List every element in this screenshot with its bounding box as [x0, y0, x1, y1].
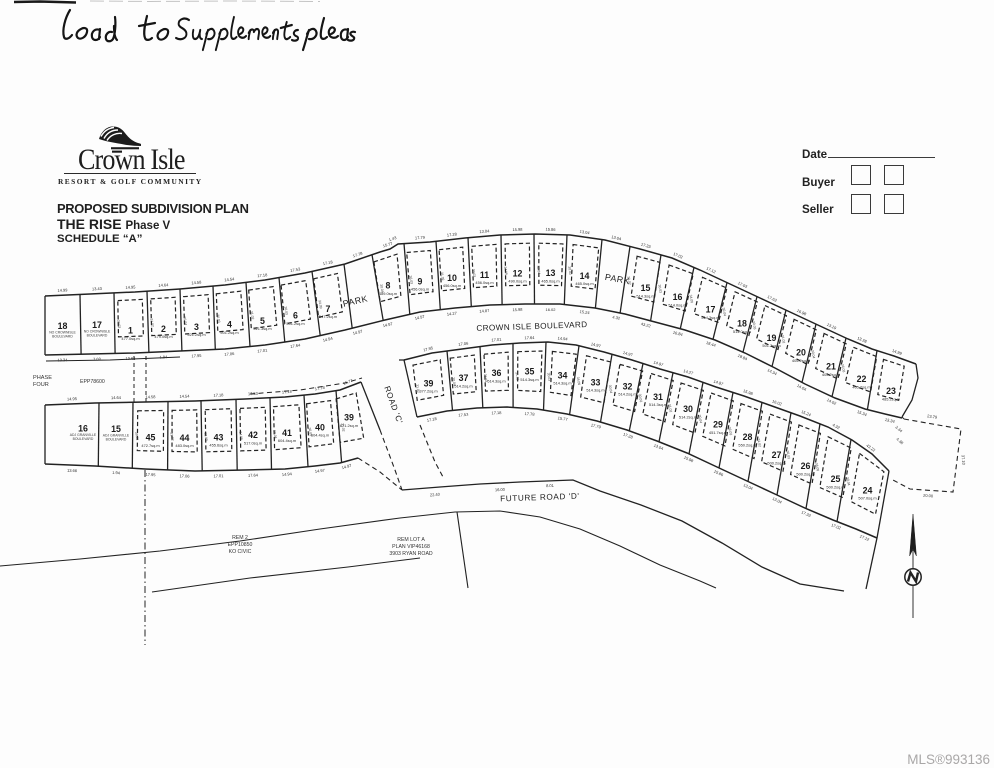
- svg-text:17.64: 17.64: [524, 335, 535, 340]
- svg-text:31.02: 31.02: [340, 423, 345, 432]
- svg-text:465.0sq.m: 465.0sq.m: [575, 281, 593, 286]
- svg-text:31.02: 31.02: [781, 335, 786, 344]
- svg-text:BOULEVARD: BOULEVARD: [106, 437, 127, 441]
- svg-text:16.02: 16.02: [545, 307, 556, 312]
- svg-text:501.2sq.m: 501.2sq.m: [220, 330, 238, 335]
- svg-text:43: 43: [214, 432, 224, 442]
- svg-text:17.18: 17.18: [491, 410, 502, 415]
- svg-text:14.97: 14.97: [414, 314, 426, 321]
- svg-text:30.04: 30.04: [536, 265, 541, 274]
- svg-text:514.3sq.m: 514.3sq.m: [553, 381, 571, 386]
- svg-text:1.94: 1.94: [159, 354, 168, 359]
- svg-text:20.00: 20.00: [923, 493, 934, 499]
- svg-text:30.04: 30.04: [608, 385, 613, 394]
- svg-text:35: 35: [525, 367, 535, 377]
- svg-text:30.04: 30.04: [698, 414, 703, 423]
- svg-text:14.99: 14.99: [891, 348, 903, 356]
- svg-text:17.79: 17.79: [590, 422, 602, 429]
- svg-text:514.3sq.m: 514.3sq.m: [487, 378, 505, 383]
- svg-text:17.18: 17.18: [282, 389, 293, 395]
- svg-text:36.03: 36.03: [134, 432, 139, 441]
- svg-text:23.79: 23.79: [927, 413, 938, 419]
- svg-text:17.64: 17.64: [248, 472, 259, 477]
- svg-text:14.64: 14.64: [158, 282, 169, 288]
- svg-text:514.0sq.m: 514.0sq.m: [733, 329, 751, 334]
- svg-text:14.97: 14.97: [622, 350, 634, 358]
- svg-text:34.09: 34.09: [815, 463, 820, 472]
- svg-text:34: 34: [558, 370, 568, 380]
- svg-text:13: 13: [546, 268, 556, 278]
- svg-text:465.0sq.m: 465.0sq.m: [541, 279, 559, 284]
- svg-text:21: 21: [826, 362, 836, 372]
- svg-text:36.03: 36.03: [728, 427, 733, 436]
- svg-text:30: 30: [683, 404, 693, 414]
- svg-text:41: 41: [282, 428, 292, 438]
- svg-text:1.43: 1.43: [388, 235, 398, 242]
- svg-text:8.01: 8.01: [546, 483, 555, 488]
- svg-text:32: 32: [623, 381, 633, 391]
- svg-text:17.95: 17.95: [145, 472, 156, 477]
- svg-text:REM LOT A: REM LOT A: [397, 537, 425, 543]
- svg-text:514.3sq.m: 514.3sq.m: [586, 388, 604, 393]
- svg-text:456.0sq.m: 456.0sq.m: [475, 280, 493, 285]
- svg-text:PARK: PARK: [342, 293, 369, 308]
- svg-text:14.54: 14.54: [179, 393, 190, 398]
- svg-text:45: 45: [146, 433, 156, 443]
- svg-text:15.98: 15.98: [512, 307, 523, 312]
- svg-text:514.3sq.m: 514.3sq.m: [636, 293, 654, 298]
- svg-text:37.10: 37.10: [961, 455, 967, 466]
- svg-text:14.87: 14.87: [479, 308, 490, 314]
- svg-text:REM 2: REM 2: [232, 535, 248, 541]
- svg-text:PLAN VIP46168: PLAN VIP46168: [392, 544, 430, 550]
- svg-text:43.22: 43.22: [640, 321, 652, 329]
- svg-text:10: 10: [447, 273, 457, 283]
- svg-text:11: 11: [480, 270, 489, 280]
- svg-text:455.6sq.m: 455.6sq.m: [209, 443, 227, 448]
- svg-text:13.04: 13.04: [579, 229, 590, 235]
- svg-text:550.2sq.m: 550.2sq.m: [738, 443, 756, 448]
- svg-text:34.09: 34.09: [689, 294, 694, 303]
- svg-text:25: 25: [831, 474, 841, 484]
- svg-text:14.95: 14.95: [125, 284, 136, 289]
- svg-text:7.03: 7.03: [93, 356, 102, 361]
- svg-text:17.95: 17.95: [191, 353, 202, 358]
- svg-text:479.0sq.m: 479.0sq.m: [154, 334, 172, 339]
- svg-text:14.97: 14.97: [315, 468, 326, 474]
- svg-text:14.97: 14.97: [341, 463, 353, 471]
- svg-text:12: 12: [513, 268, 523, 278]
- svg-text:14: 14: [580, 271, 590, 281]
- svg-text:8: 8: [386, 281, 391, 291]
- svg-text:1: 1: [128, 326, 133, 336]
- svg-text:405.2sq.m: 405.2sq.m: [822, 372, 840, 377]
- svg-text:36.03: 36.03: [483, 374, 488, 383]
- svg-text:30.03: 30.03: [657, 284, 662, 293]
- svg-text:15: 15: [641, 283, 651, 293]
- svg-text:17.33: 17.33: [640, 242, 652, 250]
- svg-text:3: 3: [194, 322, 199, 332]
- svg-text:15.77: 15.77: [557, 415, 568, 422]
- svg-text:405.2sq.m: 405.2sq.m: [792, 358, 810, 363]
- svg-text:30.04: 30.04: [182, 316, 187, 325]
- svg-text:13.66: 13.66: [125, 356, 136, 361]
- svg-text:30.03: 30.03: [786, 450, 791, 459]
- svg-text:39: 39: [344, 413, 354, 423]
- svg-text:517.0sq.m: 517.0sq.m: [244, 441, 262, 446]
- svg-text:30.03: 30.03: [546, 372, 551, 381]
- svg-text:17.01: 17.01: [213, 473, 224, 478]
- svg-text:17.06: 17.06: [179, 473, 190, 478]
- svg-text:31: 31: [653, 392, 663, 402]
- svg-text:17: 17: [706, 305, 716, 315]
- svg-text:14.58: 14.58: [145, 394, 156, 399]
- svg-text:14.64: 14.64: [111, 395, 122, 400]
- svg-text:22.40: 22.40: [430, 492, 441, 498]
- svg-text:27: 27: [772, 450, 782, 460]
- svg-text:37: 37: [459, 373, 469, 383]
- svg-text:14.54: 14.54: [224, 276, 235, 282]
- svg-text:514.3sq.m: 514.3sq.m: [649, 402, 667, 407]
- svg-text:34.09: 34.09: [238, 431, 243, 440]
- svg-text:17.79: 17.79: [415, 235, 426, 241]
- svg-text:13.04: 13.04: [611, 234, 623, 242]
- svg-text:20: 20: [796, 348, 806, 358]
- svg-text:43.22: 43.22: [865, 443, 877, 453]
- svg-text:34.09: 34.09: [318, 300, 323, 309]
- svg-text:17.28: 17.28: [447, 231, 458, 237]
- svg-text:33: 33: [591, 377, 601, 387]
- svg-text:31.02: 31.02: [149, 318, 154, 327]
- svg-text:30.03: 30.03: [752, 321, 757, 330]
- svg-text:501.2sq.m: 501.2sq.m: [762, 343, 780, 348]
- svg-text:507.0sq.m: 507.0sq.m: [858, 496, 876, 501]
- svg-text:477.0sq.m: 477.0sq.m: [121, 336, 139, 341]
- svg-text:13.34: 13.34: [884, 417, 896, 424]
- svg-text:18: 18: [737, 319, 747, 329]
- svg-text:16: 16: [673, 292, 683, 302]
- svg-text:ROAD 'C': ROAD 'C': [382, 385, 404, 425]
- svg-text:36.03: 36.03: [841, 364, 846, 373]
- svg-text:17.18: 17.18: [426, 416, 438, 423]
- svg-text:36: 36: [492, 368, 502, 378]
- svg-text:15.34: 15.34: [856, 409, 868, 417]
- svg-text:17.95: 17.95: [423, 345, 435, 352]
- svg-text:514.3sq.m: 514.3sq.m: [520, 377, 538, 382]
- svg-text:2: 2: [161, 324, 166, 334]
- svg-text:500.2sq.m: 500.2sq.m: [796, 472, 814, 477]
- svg-text:485.2sq.m: 485.2sq.m: [882, 397, 900, 402]
- svg-text:521.2sq.m: 521.2sq.m: [187, 332, 205, 337]
- svg-text:500.2sq.m: 500.2sq.m: [826, 484, 844, 489]
- svg-text:30.04: 30.04: [811, 350, 816, 359]
- svg-text:30.04: 30.04: [846, 477, 851, 486]
- svg-text:9: 9: [418, 276, 423, 286]
- svg-text:514.2sq.m: 514.2sq.m: [679, 415, 697, 420]
- svg-text:34.09: 34.09: [503, 266, 508, 275]
- svg-text:24: 24: [863, 485, 873, 495]
- svg-text:14.94: 14.94: [322, 335, 334, 342]
- svg-text:17.64: 17.64: [290, 342, 301, 349]
- svg-text:456.0sq.m: 456.0sq.m: [411, 287, 429, 292]
- svg-text:30.03: 30.03: [638, 394, 643, 403]
- svg-text:1.94: 1.94: [112, 470, 121, 475]
- svg-text:13.04: 13.04: [479, 228, 490, 234]
- svg-text:17: 17: [92, 320, 102, 330]
- svg-text:501.2sq.m: 501.2sq.m: [286, 321, 304, 326]
- svg-text:30.03: 30.03: [471, 269, 476, 278]
- svg-text:14.95: 14.95: [67, 396, 78, 401]
- svg-text:KO CIVIC: KO CIVIC: [229, 549, 252, 555]
- svg-text:23: 23: [886, 386, 896, 396]
- svg-text:14.58: 14.58: [191, 279, 202, 285]
- svg-text:13.43: 13.43: [92, 286, 103, 291]
- svg-text:14.94: 14.94: [557, 335, 568, 341]
- svg-text:405.2sq.m: 405.2sq.m: [852, 385, 870, 390]
- svg-text:26: 26: [801, 461, 811, 471]
- svg-text:36.03: 36.03: [216, 314, 221, 323]
- svg-text:14.27: 14.27: [683, 368, 695, 376]
- svg-text:14.97: 14.97: [653, 359, 665, 367]
- svg-text:14.99: 14.99: [57, 287, 68, 292]
- svg-text:40: 40: [315, 422, 325, 432]
- svg-text:17.01: 17.01: [491, 337, 502, 343]
- svg-text:17.78: 17.78: [352, 250, 364, 258]
- svg-text:22: 22: [857, 374, 867, 384]
- svg-text:EPP78600: EPP78600: [80, 379, 105, 385]
- svg-text:29: 29: [713, 420, 723, 430]
- svg-text:31.02: 31.02: [757, 438, 762, 447]
- svg-text:30.03: 30.03: [567, 266, 572, 275]
- svg-text:17.06: 17.06: [458, 340, 469, 346]
- svg-text:17.53: 17.53: [290, 266, 301, 273]
- svg-text:13.66: 13.66: [67, 468, 78, 473]
- svg-text:514.3sq.m: 514.3sq.m: [701, 315, 719, 320]
- svg-text:4.32: 4.32: [612, 314, 621, 321]
- svg-text:4.38: 4.38: [895, 436, 905, 445]
- svg-text:FOUR: FOUR: [33, 382, 49, 388]
- svg-text:39: 39: [424, 378, 434, 388]
- svg-text:34.09: 34.09: [576, 377, 581, 386]
- svg-text:547.2sq.m: 547.2sq.m: [319, 314, 337, 319]
- svg-text:14.27: 14.27: [447, 310, 458, 316]
- svg-text:31.02: 31.02: [169, 432, 174, 441]
- svg-text:31.02: 31.02: [668, 404, 673, 413]
- svg-text:15.98: 15.98: [512, 227, 523, 232]
- svg-text:6: 6: [293, 311, 298, 321]
- svg-text:16.02: 16.02: [771, 399, 783, 407]
- svg-text:14.97: 14.97: [590, 341, 602, 348]
- svg-text:30.03: 30.03: [203, 432, 208, 441]
- svg-text:483.0sq.m: 483.0sq.m: [175, 443, 193, 448]
- svg-text:30.04: 30.04: [272, 430, 277, 439]
- svg-text:5: 5: [260, 316, 265, 326]
- svg-text:17.78: 17.78: [524, 411, 535, 417]
- svg-text:16.84: 16.84: [672, 330, 684, 338]
- svg-text:14.87: 14.87: [713, 379, 725, 387]
- svg-text:521.3sq.m: 521.3sq.m: [253, 326, 271, 331]
- svg-text:514.2sq.m: 514.2sq.m: [618, 392, 636, 397]
- svg-text:17.01: 17.01: [257, 348, 268, 354]
- svg-text:14.97: 14.97: [352, 328, 364, 335]
- svg-text:44: 44: [180, 433, 190, 443]
- svg-text:3.34: 3.34: [894, 424, 904, 433]
- svg-text:15.98: 15.98: [742, 388, 754, 396]
- svg-text:18.44: 18.44: [705, 340, 717, 348]
- svg-text:472.7sq.m: 472.7sq.m: [141, 443, 159, 448]
- svg-text:15: 15: [111, 424, 121, 434]
- svg-text:17.18: 17.18: [213, 392, 224, 397]
- svg-text:15.86: 15.86: [545, 227, 556, 232]
- svg-text:7: 7: [326, 304, 331, 314]
- svg-text:30.04: 30.04: [722, 307, 727, 316]
- svg-text:17.18: 17.18: [322, 259, 334, 266]
- svg-text:17.53: 17.53: [458, 412, 469, 418]
- svg-text:18: 18: [58, 321, 68, 331]
- svg-text:451.7sq.m: 451.7sq.m: [709, 430, 727, 435]
- svg-text:19: 19: [767, 333, 777, 343]
- svg-text:30.03: 30.03: [116, 320, 121, 329]
- svg-text:500.2sq.m: 500.2sq.m: [767, 461, 785, 466]
- svg-text:13.34: 13.34: [57, 357, 68, 362]
- svg-text:490.0sq.m: 490.0sq.m: [508, 279, 526, 284]
- svg-text:42: 42: [248, 430, 258, 440]
- svg-text:PARK: PARK: [604, 272, 631, 286]
- svg-text:604.4sq.m: 604.4sq.m: [278, 438, 296, 443]
- svg-text:BOULEVARD: BOULEVARD: [87, 333, 108, 337]
- svg-text:EPP10850: EPP10850: [228, 542, 253, 548]
- svg-text:14.94: 14.94: [282, 471, 293, 477]
- svg-text:514.0sq.m: 514.0sq.m: [668, 303, 686, 308]
- svg-text:4: 4: [227, 320, 232, 330]
- svg-text:17.06: 17.06: [224, 351, 235, 357]
- svg-text:16.00: 16.00: [495, 487, 506, 493]
- svg-text:3903 RYAN ROAD: 3903 RYAN ROAD: [389, 551, 433, 557]
- svg-text:31.02: 31.02: [515, 372, 520, 381]
- svg-text:16: 16: [78, 424, 88, 434]
- svg-text:17.18: 17.18: [257, 272, 268, 278]
- svg-text:FUTURE ROAD 'D': FUTURE ROAD 'D': [500, 492, 580, 504]
- svg-text:PHASE: PHASE: [33, 375, 52, 381]
- svg-text:15.24: 15.24: [579, 309, 590, 315]
- svg-text:17.78: 17.78: [314, 385, 325, 392]
- svg-text:14.97: 14.97: [382, 321, 394, 328]
- svg-text:28: 28: [743, 432, 753, 442]
- svg-text:17.53: 17.53: [248, 391, 259, 397]
- svg-text:CROWN ISLE BOULEVARD: CROWN ISLE BOULEVARD: [476, 320, 587, 333]
- svg-text:377.2sq.m: 377.2sq.m: [419, 389, 437, 394]
- svg-text:BOULEVARD: BOULEVARD: [52, 334, 73, 338]
- svg-text:BOULEVARD: BOULEVARD: [73, 437, 94, 441]
- svg-text:456.0sq.m: 456.0sq.m: [443, 283, 461, 288]
